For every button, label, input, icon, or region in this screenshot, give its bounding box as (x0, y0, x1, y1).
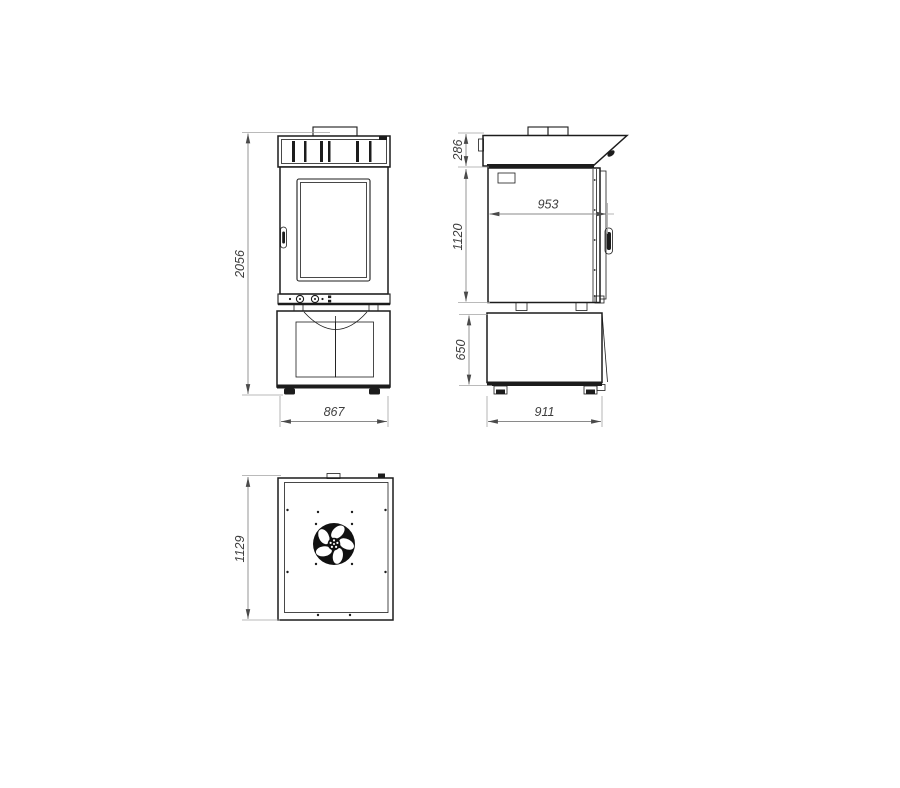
side-stand-door-edge (602, 313, 608, 382)
front-control-panel (278, 294, 390, 304)
dim-label-side-depth: 911 (535, 405, 555, 419)
front-view (277, 127, 390, 395)
side-duct-right (548, 127, 568, 136)
indicator-dot (289, 298, 291, 300)
dim-label-hood-height: 286 (451, 140, 465, 162)
top-fitting (378, 474, 385, 478)
side-hood-base (487, 164, 594, 168)
side-base-rail (487, 382, 602, 387)
top-view (278, 474, 393, 621)
dim-label-stand-height: 650 (454, 340, 468, 361)
dim-label-front-width: 867 (324, 405, 346, 419)
side-spacer-left (516, 303, 527, 311)
side-hood (483, 136, 627, 167)
dim-front-width: 867 (280, 396, 388, 427)
side-oven-body (488, 168, 600, 303)
dim-top-depth: 1129 (233, 476, 281, 621)
front-foot-right (369, 389, 380, 395)
side-stand-body (487, 313, 602, 383)
front-chimney (313, 127, 357, 136)
front-foot-left (284, 389, 295, 395)
side-duct-left (528, 127, 548, 136)
dim-body-height: 1120 (451, 169, 490, 303)
side-spacer-right (576, 303, 587, 311)
dim-label-overall-height: 2056 (233, 250, 247, 279)
indicator-dot (321, 298, 323, 300)
front-stand (277, 311, 390, 395)
side-view (479, 127, 628, 394)
front-base-rail (277, 385, 390, 389)
drawing-canvas: 2056 867 286 1120 650 (0, 0, 900, 788)
dim-label-body-height: 1120 (451, 224, 465, 251)
front-grille-badge (379, 137, 387, 141)
dim-label-inner-depth: 953 (538, 198, 559, 212)
side-stand (487, 313, 608, 394)
front-oven-body (280, 167, 388, 294)
dim-side-depth: 911 (487, 396, 602, 427)
technical-drawing: 2056 867 286 1120 650 (0, 0, 900, 788)
dim-label-top-depth: 1129 (233, 536, 247, 563)
